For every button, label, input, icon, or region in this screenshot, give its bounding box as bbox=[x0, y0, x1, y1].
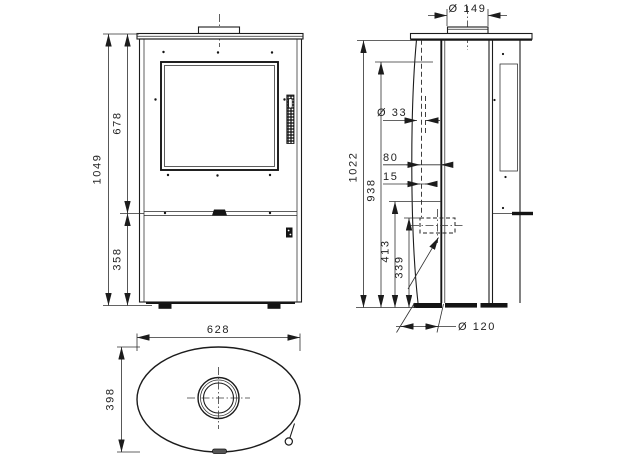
top-plate-side bbox=[411, 34, 533, 40]
dim-offset-15: 15 bbox=[383, 171, 398, 183]
dim-front-lower-height: 358 bbox=[112, 247, 124, 270]
top-view: 628 398 bbox=[105, 324, 301, 454]
door-handle bbox=[287, 95, 294, 144]
dim-flue-collar-diameter: Ø 149 bbox=[449, 3, 487, 15]
rear-panel-recess bbox=[500, 64, 518, 171]
drawing-canvas: 1049 678 358 bbox=[0, 0, 624, 460]
dim-top-depth: 398 bbox=[105, 387, 117, 410]
foot-left bbox=[159, 304, 172, 309]
side-view: Ø 149 1022 938 413 339 Ø 33 80 bbox=[348, 3, 534, 333]
dim-front-upper-height: 678 bbox=[112, 111, 124, 134]
foot-right bbox=[268, 304, 281, 309]
dim-front-total-height: 1049 bbox=[92, 154, 104, 185]
lock-detail bbox=[286, 228, 293, 238]
screw-marks-front bbox=[154, 51, 285, 214]
base-side-3 bbox=[481, 303, 508, 308]
dim-air-inlet-diameter: Ø 120 bbox=[458, 321, 496, 333]
dim-hidden-hole-diameter: Ø 33 bbox=[377, 107, 407, 119]
top-dimensions: 628 398 bbox=[105, 324, 301, 452]
door-window bbox=[161, 62, 278, 170]
side-dimensions: Ø 149 1022 938 413 339 Ø 33 80 bbox=[348, 3, 508, 333]
dim-side-total-height: 1022 bbox=[348, 152, 360, 183]
hinge-bump-top bbox=[213, 449, 227, 454]
dim-offset-80: 80 bbox=[383, 152, 398, 164]
dim-outlet-center-height: 413 bbox=[380, 239, 392, 262]
stove-dimension-drawing: 1049 678 358 bbox=[0, 0, 624, 460]
front-view: 1049 678 358 bbox=[92, 14, 304, 309]
dim-flue-center-height: 938 bbox=[366, 178, 378, 201]
dim-outlet-bottom-height: 339 bbox=[394, 255, 406, 278]
front-curved-edge bbox=[412, 40, 418, 303]
rear-panel-tab bbox=[512, 212, 533, 215]
dim-top-width: 628 bbox=[207, 324, 230, 336]
front-dimensions: 1049 678 358 bbox=[92, 34, 153, 306]
flue-collar-side bbox=[448, 27, 489, 34]
rear-outlet-knockout bbox=[408, 209, 463, 289]
base-side-2 bbox=[445, 303, 477, 308]
base-side-1 bbox=[414, 303, 443, 308]
handle-knob-top bbox=[285, 424, 294, 446]
flue-collar-front bbox=[199, 27, 240, 34]
door-latch bbox=[212, 210, 227, 216]
